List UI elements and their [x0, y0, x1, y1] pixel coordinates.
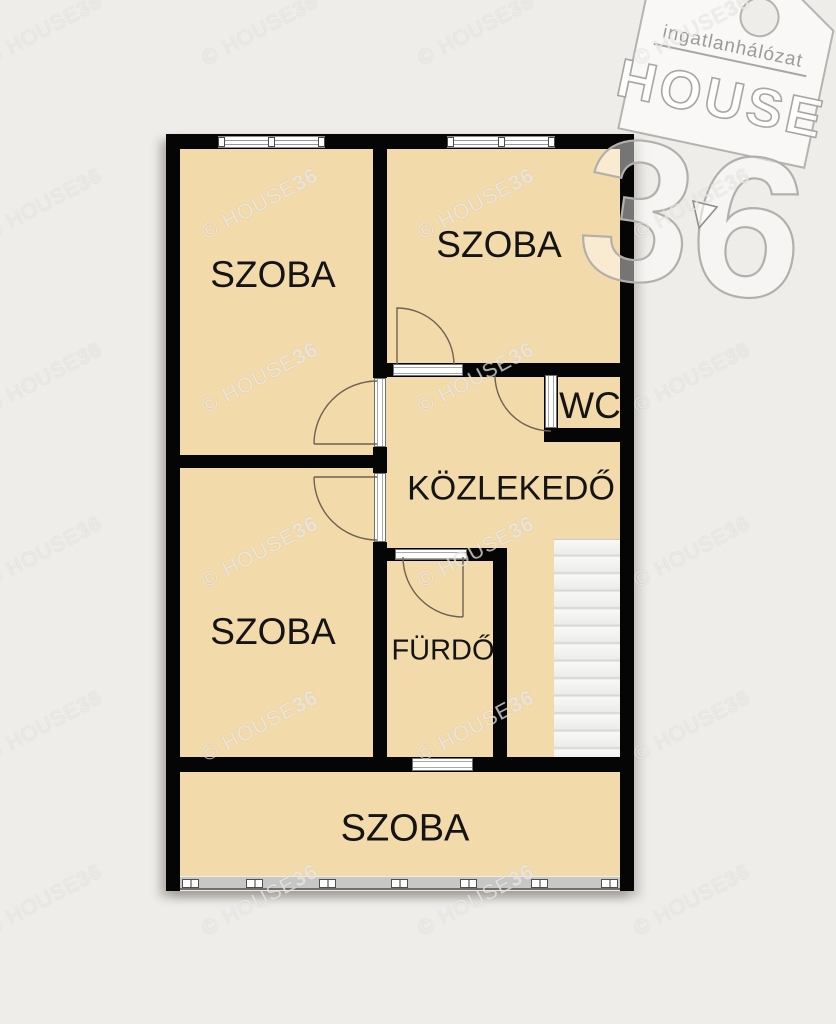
- room-label-hallway: KÖZLEKEDŐ: [407, 470, 615, 509]
- watermark-text: © HOUSE36: [0, 0, 108, 71]
- watermark-text: © HOUSE36: [630, 859, 756, 941]
- watermark-text: © HOUSE36: [630, 337, 756, 419]
- room-label-bathroom: FÜRDŐ: [391, 635, 494, 668]
- window-post-icon: [531, 879, 548, 888]
- watermark-text: © HOUSE36: [0, 685, 108, 767]
- window-post-icon: [391, 879, 408, 888]
- watermark-text: © HOUSE36: [198, 0, 324, 71]
- svg-text:HOUSE: HOUSE: [612, 48, 832, 151]
- window-post-icon: [268, 137, 275, 147]
- window-post-icon: [319, 879, 336, 888]
- wall-wc-bottom: [544, 428, 634, 442]
- logo-tag-shape: [618, 0, 836, 168]
- wall-left: [166, 134, 180, 891]
- watermark-text: © HOUSE36: [0, 511, 108, 593]
- window-post-icon: [182, 879, 199, 888]
- window-post-icon: [246, 879, 263, 888]
- door-opening-top-right-room: [393, 364, 463, 376]
- watermark-text: © HOUSE36: [630, 163, 756, 245]
- wall-vertical-mid: [373, 447, 387, 473]
- window-band-bottom: [180, 876, 620, 890]
- watermark-text: © HOUSE36: [0, 337, 108, 419]
- window-post-icon: [218, 137, 225, 147]
- watermark-text: © HOUSE36: [0, 163, 108, 245]
- window-post-icon: [601, 879, 618, 888]
- wall-bath-right: [493, 548, 507, 772]
- watermark-text: © HOUSE36: [630, 685, 756, 767]
- window-post-icon: [318, 137, 325, 147]
- floor-plan-canvas: SZOBA SZOBA WC KÖZLEKEDŐ SZOBA FÜRDŐ SZO…: [0, 0, 836, 1024]
- svg-text:ingatlanhálózat: ingatlanhálózat: [661, 22, 805, 72]
- wall-vertical-top: [373, 149, 387, 378]
- window-post-icon: [460, 879, 477, 888]
- wall-right: [620, 134, 634, 891]
- room-label-bottom: SZOBA: [341, 808, 470, 851]
- watermark-text: © HOUSE36: [630, 511, 756, 593]
- window-post-icon: [548, 137, 555, 147]
- logo-hole-icon: [737, 0, 782, 40]
- watermark-text: © HOUSE36: [630, 0, 756, 71]
- door-opening-top-left-room: [374, 378, 386, 447]
- staircase: [554, 539, 620, 757]
- window-post-icon: [498, 137, 505, 147]
- door-opening-bathroom: [395, 549, 467, 560]
- room-label-wc: WC: [559, 385, 621, 427]
- wall-vertical-low: [373, 542, 387, 772]
- opening-bottom-room: [412, 758, 473, 771]
- room-label-top-right: SZOBA: [436, 224, 561, 266]
- wall-bottom-sep: [166, 757, 634, 772]
- room-label-bottom-left: SZOBA: [210, 611, 335, 653]
- logo-roof-notch-icon: [693, 201, 717, 228]
- door-opening-wc: [545, 375, 557, 428]
- watermark-text: © HOUSE36: [414, 0, 540, 71]
- wall-mid-left: [166, 455, 387, 468]
- door-opening-bottom-left-room: [374, 473, 386, 542]
- room-label-top-left: SZOBA: [210, 254, 335, 296]
- watermark-text: © HOUSE36: [0, 859, 108, 941]
- window-top-left: [218, 136, 325, 148]
- window-post-icon: [447, 137, 454, 147]
- window-top-right: [447, 136, 555, 148]
